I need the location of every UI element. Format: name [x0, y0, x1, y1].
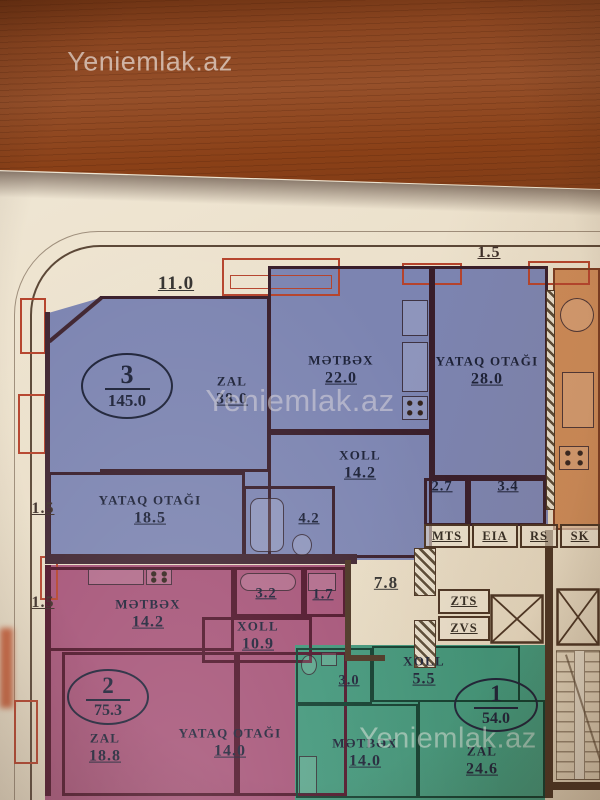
wall-hatched — [546, 290, 555, 510]
wall — [345, 560, 351, 660]
room-label: YATAQ OTAĞI 18.5 — [99, 493, 202, 528]
room-label: 4.2 — [298, 510, 319, 527]
stove-icon — [559, 446, 589, 470]
service-cell-sk: SK — [560, 524, 600, 548]
service-cell-eia: EIA — [472, 524, 518, 548]
wall — [45, 312, 50, 558]
room-label: XOLL 10.9 — [237, 619, 279, 654]
wall — [45, 554, 357, 564]
service-cell-mts: MTS — [424, 524, 470, 548]
watermark: Yeniemlak.az — [67, 47, 233, 78]
room-label: XOLL 14.2 — [339, 448, 381, 483]
sink-icon — [321, 652, 337, 666]
balcony-outline — [20, 298, 46, 354]
balcony-outline — [18, 394, 46, 454]
photo-edge-artifact — [0, 628, 13, 708]
room-label: ZAL 18.8 — [89, 731, 121, 766]
stair-rail — [574, 651, 585, 779]
dimension-label: 1.5 — [478, 244, 501, 262]
room-label: 3.0 — [338, 672, 359, 689]
room-label: XOLL 5.5 — [403, 654, 445, 689]
service-cell-rs: RS — [520, 524, 558, 548]
kitchen-counter-icon — [402, 342, 428, 392]
dimension-label: 1.5 — [32, 594, 55, 612]
room-label: YATAQ OTAĞI 14.0 — [179, 726, 282, 761]
watermark: Yeniemlak.az — [205, 383, 394, 419]
kitchen-counter-icon — [299, 756, 317, 794]
bathtub-icon — [250, 498, 284, 552]
wall-hatched — [414, 548, 436, 596]
toilet-icon — [292, 534, 312, 556]
apartment-3-badge: 3 145.0 — [81, 353, 173, 419]
balcony-outline — [14, 700, 38, 764]
service-cell-zvs: ZVS — [438, 616, 490, 641]
stove-icon — [146, 569, 172, 585]
stove-icon — [402, 396, 428, 420]
kitchen-counter-icon — [402, 300, 428, 336]
dimension-label: 1.5 — [32, 500, 55, 518]
watermark: Yeniemlak.az — [359, 723, 536, 756]
room-label: 3.4 — [497, 478, 518, 495]
room-label: 3.2 — [255, 585, 276, 602]
corridor-label: 7.8 — [374, 573, 398, 593]
dimension-label: 11.0 — [158, 273, 194, 295]
elevator-shaft-icon — [556, 588, 600, 646]
room-label: YATAQ OTAĞI 28.0 — [436, 354, 539, 389]
staircase-icon — [556, 650, 600, 780]
wall — [345, 655, 385, 661]
table-icon — [560, 298, 594, 332]
elevator-shaft-icon — [490, 594, 544, 644]
floor-plan-photo: Yeniemlak.az MTS EIA RS SK — [0, 0, 600, 800]
room-label: 1.7 — [312, 586, 333, 603]
wall — [548, 782, 600, 790]
kitchen-counter-icon — [562, 372, 594, 428]
service-cell-zts: ZTS — [438, 589, 490, 614]
room-label: 2.7 — [431, 478, 452, 495]
apartment-2-badge: 2 75.3 — [67, 669, 149, 725]
kitchen-counter-icon — [88, 569, 144, 585]
toilet-icon — [301, 655, 317, 675]
wall — [545, 530, 553, 798]
room-label: MƏTBƏX 14.2 — [115, 597, 180, 632]
